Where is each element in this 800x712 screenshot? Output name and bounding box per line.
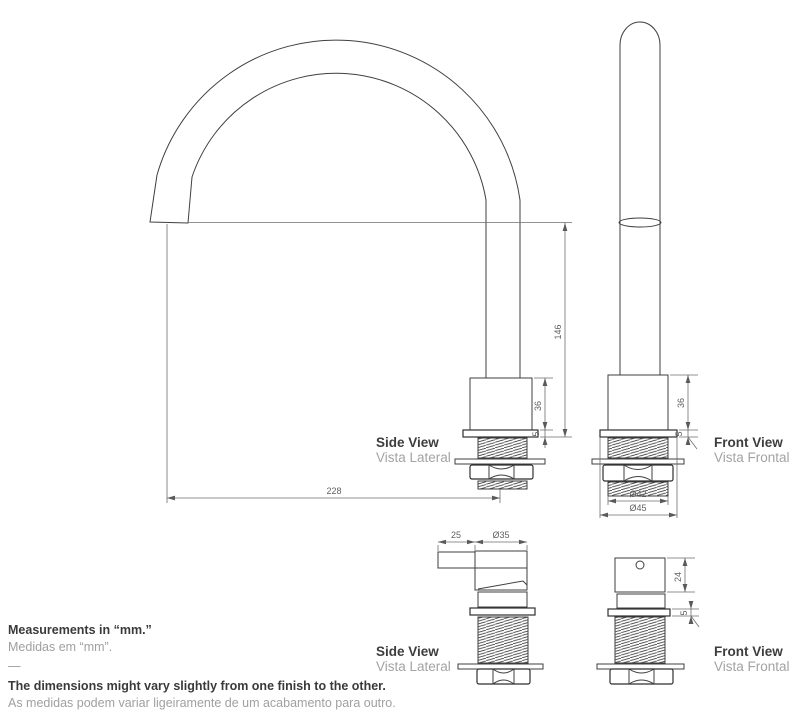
handle-front-washer <box>597 664 684 669</box>
notes-block: Measurements in “mm.” Medidas em “mm”. —… <box>8 622 396 712</box>
spout-inner-arc <box>192 73 486 378</box>
spout-outer-arc <box>157 40 520 378</box>
handle-side-flange <box>470 608 535 615</box>
spout-front-view: Ø42 Ø45 36 5 Front View Vista Frontal <box>592 22 790 518</box>
spout-side-view-title: Side View <box>376 435 439 450</box>
spout-front-view-title: Front View <box>714 435 783 450</box>
handle-side-view: 25 Ø35 Side View Vista Lateral <box>376 530 543 684</box>
spout-front-tube <box>620 22 660 375</box>
handle-side-body <box>475 551 527 590</box>
note-measurements-title: Measurements in “mm.” <box>8 622 396 639</box>
dim-spout-reach: 228 <box>326 486 341 496</box>
dim-handle-flange-height: 5 <box>679 610 689 615</box>
spout-side-view: 146 36 5 228 Side View Vista Lateral <box>150 40 572 503</box>
spout-tip <box>150 175 192 223</box>
dim-spout-body-height-side: 36 <box>533 401 543 411</box>
dim-spout-flange-height-side: 5 <box>531 431 541 436</box>
handle-front-nut <box>610 669 673 684</box>
dim-spout-outlet-height: 146 <box>553 324 563 339</box>
handle-side-nut <box>477 669 530 684</box>
handle-front-flange <box>608 609 670 616</box>
spout-side-body <box>470 378 532 430</box>
handle-lever <box>438 552 475 568</box>
dim-spout-body-height-front: 36 <box>676 398 686 408</box>
technical-drawing: 146 36 5 228 Side View Vista Lateral <box>0 0 800 711</box>
handle-side-thread <box>478 617 528 663</box>
spout-side-washer <box>455 459 545 464</box>
handle-side-collar <box>478 592 527 607</box>
handle-front-collar <box>617 594 665 608</box>
dim-spout-flange-height-front: 5 <box>674 431 684 436</box>
handle-rotation-line <box>478 581 527 589</box>
dim-handle-body-height: 24 <box>673 572 683 582</box>
dim-handle-body-diameter: Ø35 <box>492 530 509 540</box>
spout-front-thread-upper <box>608 438 668 458</box>
spout-front-bend-seam <box>619 218 661 227</box>
spout-front-body <box>608 375 668 430</box>
spout-side-nut <box>470 465 533 479</box>
dim-handle-lever-length: 25 <box>451 530 461 540</box>
note-separator: — <box>8 658 396 675</box>
dim-spout-flange-diameter: Ø45 <box>629 503 646 513</box>
handle-front-view: 24 5 Front View Vista Frontal <box>597 558 790 684</box>
handle-front-body <box>615 558 665 592</box>
note-disclaimer-subtitle: As medidas podem variar ligeiramente de … <box>8 695 396 712</box>
note-measurements-subtitle: Medidas em “mm”. <box>8 639 396 656</box>
spout-side-flange <box>463 430 538 437</box>
spout-front-view-subtitle: Vista Frontal <box>714 450 790 465</box>
handle-front-view-subtitle: Vista Frontal <box>714 659 790 674</box>
spout-front-washer <box>592 459 684 464</box>
handle-front-thread <box>615 617 665 663</box>
dim-spout-thread-diameter: Ø42 <box>629 489 646 499</box>
spout-front-flange <box>600 430 677 437</box>
spout-side-thread-upper <box>478 438 527 458</box>
spout-side-thread-lower <box>478 481 527 489</box>
spout-front-nut <box>603 465 673 481</box>
note-disclaimer-title: The dimensions might vary slightly from … <box>8 678 396 695</box>
handle-front-view-title: Front View <box>714 644 783 659</box>
handle-front-lever-end <box>636 561 644 569</box>
spout-side-view-subtitle: Vista Lateral <box>376 450 451 465</box>
handle-side-washer <box>458 664 543 669</box>
